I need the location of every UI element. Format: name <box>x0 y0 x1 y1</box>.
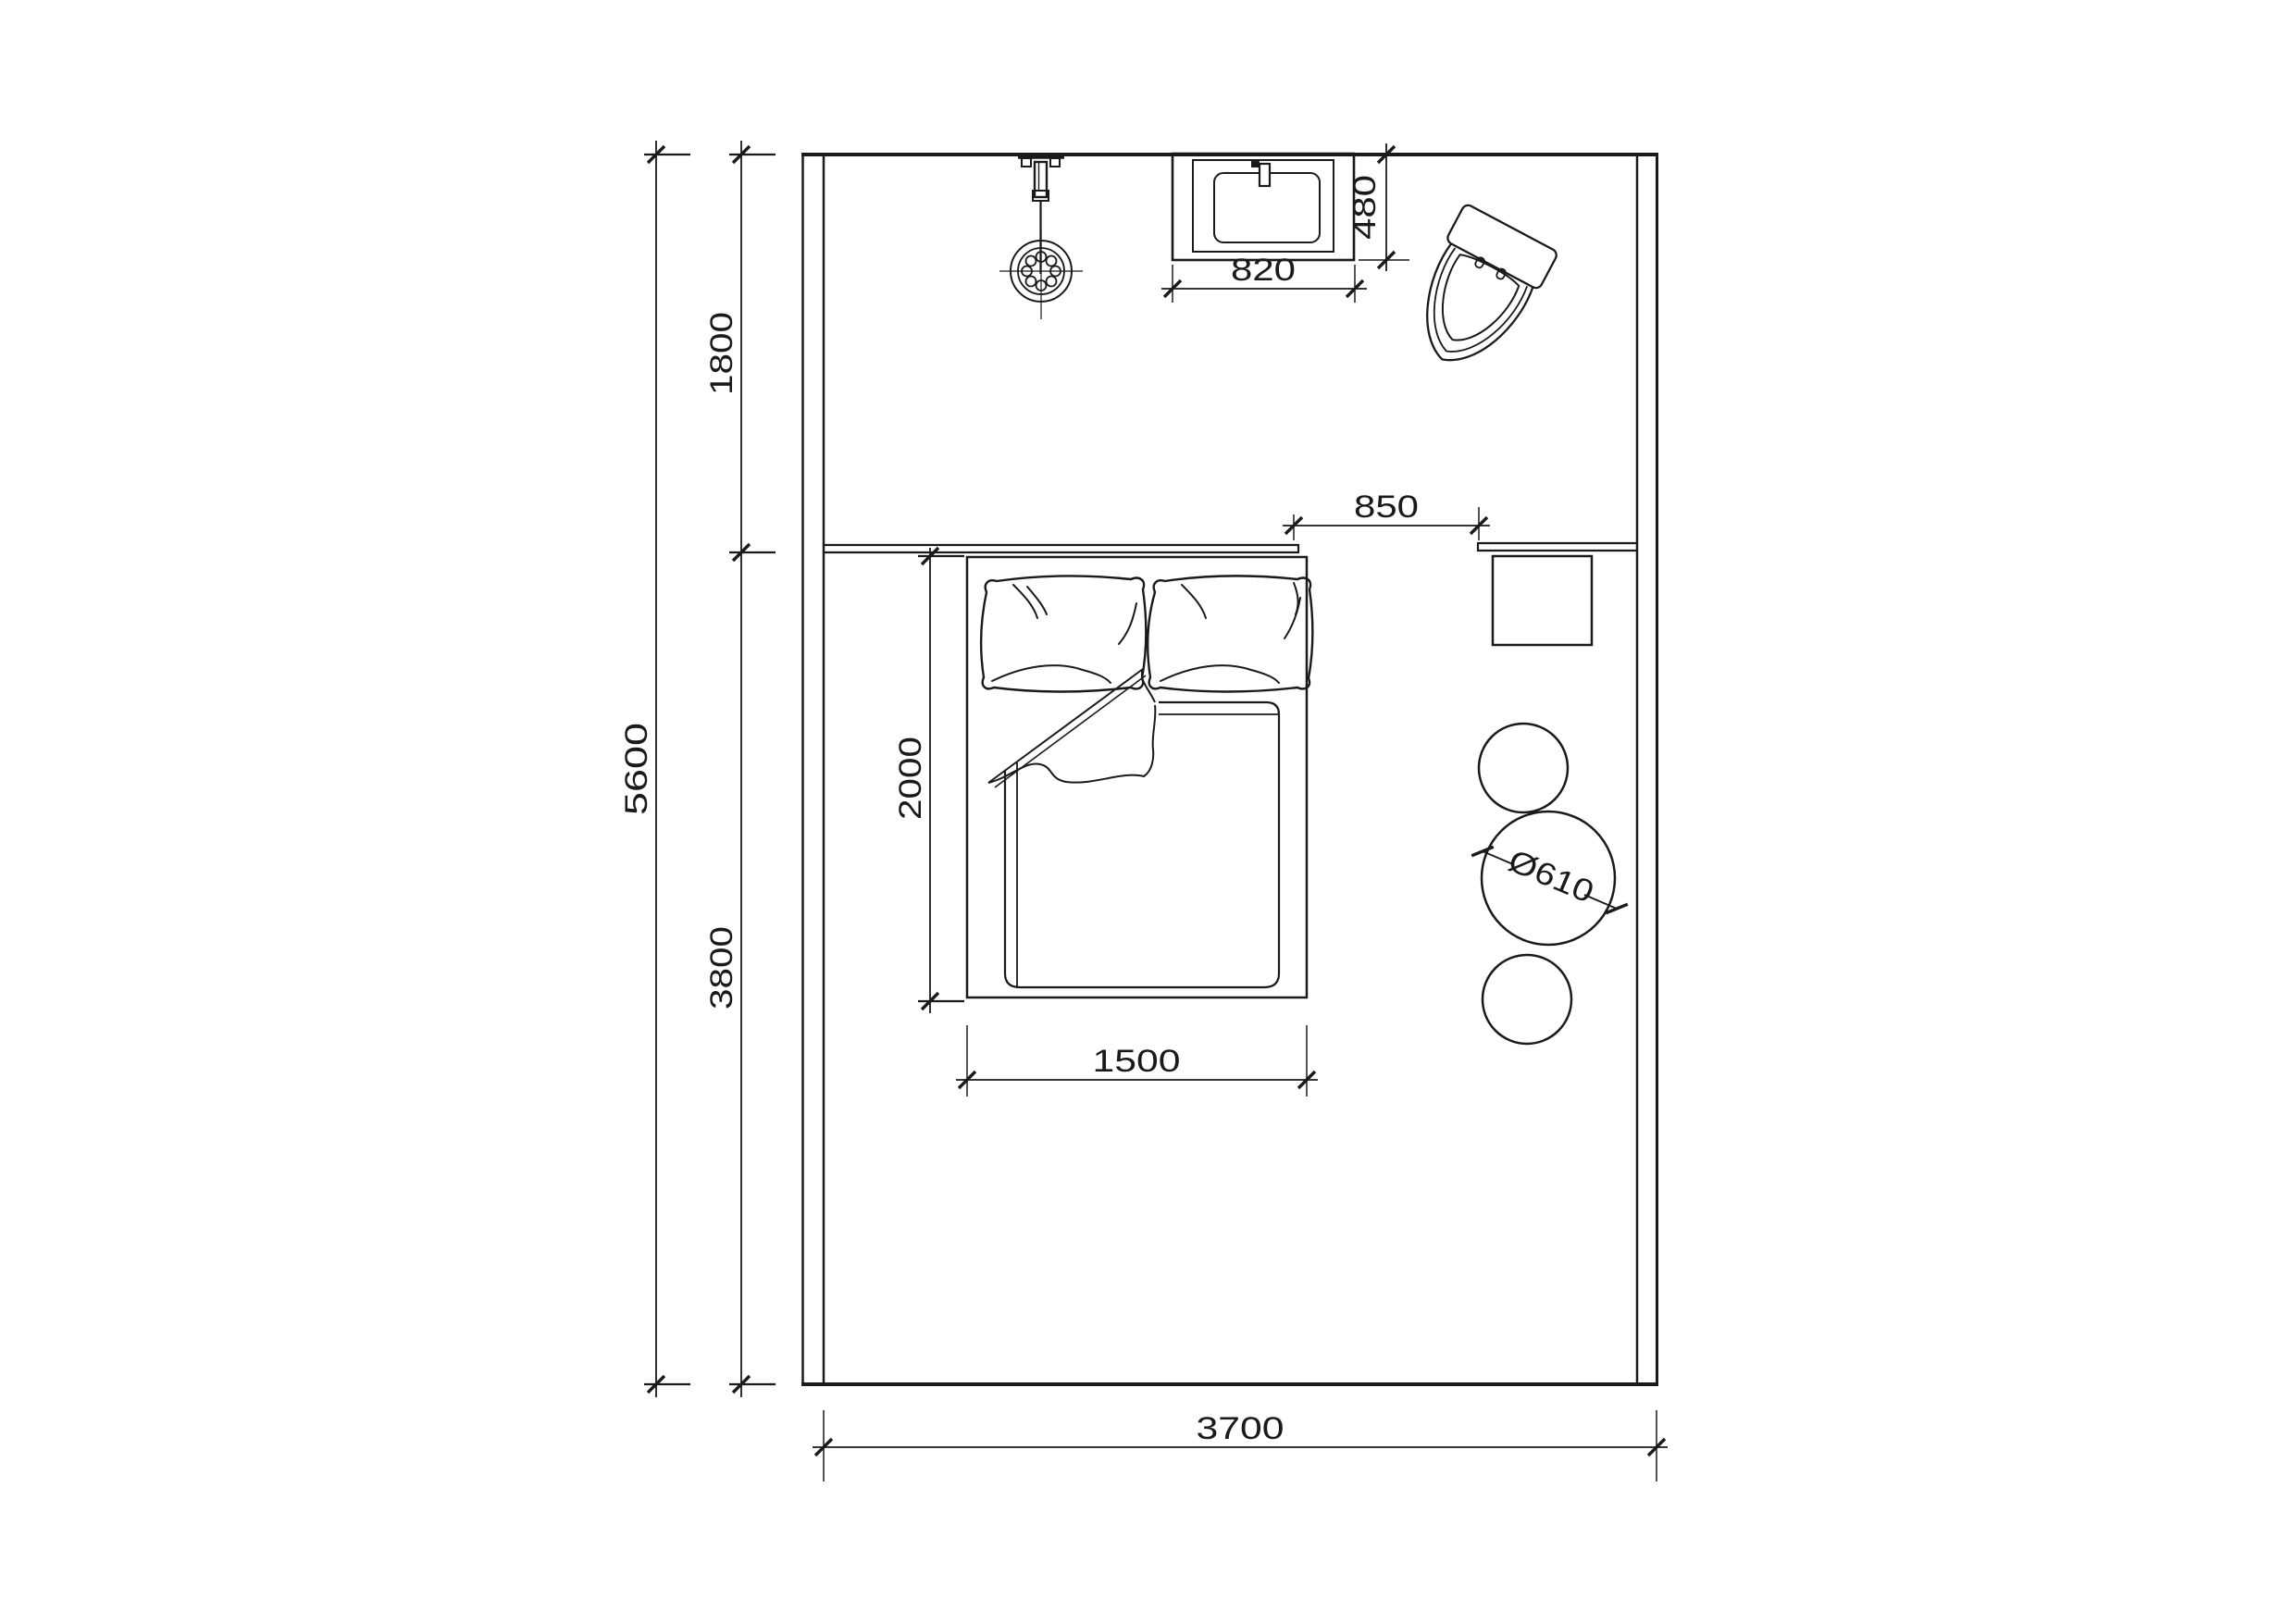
bed-frame <box>967 557 1307 997</box>
shower-fixture <box>999 157 1083 319</box>
pillow-right <box>1148 576 1312 691</box>
dim-label-3800: 3800 <box>704 926 739 1010</box>
pillow-left <box>981 576 1146 691</box>
chair-circle-bottom <box>1483 955 1571 1044</box>
dim-label-1500: 1500 <box>1093 1044 1181 1079</box>
chair-circle-top <box>1479 724 1568 812</box>
dim-label-5600: 5600 <box>619 723 654 815</box>
dim-label-2000: 2000 <box>893 737 928 820</box>
dim-label-850: 850 <box>1354 489 1419 525</box>
dim-label-3700: 3700 <box>1197 1411 1285 1446</box>
bed <box>967 557 1312 997</box>
sink <box>1173 154 1354 260</box>
desk-shelf <box>1478 543 1636 551</box>
dim-label-820: 820 <box>1231 253 1296 288</box>
floor-plan-canvas: 5600 1800 3800 2000 1500 850 820 <box>0 0 2296 1623</box>
duvet <box>988 669 1279 987</box>
stool-square <box>1493 556 1592 645</box>
sink-faucet <box>1260 164 1270 186</box>
dim-label-480: 480 <box>1347 175 1383 240</box>
headboard-ledge <box>824 545 1298 552</box>
dim-label-1800: 1800 <box>704 312 739 395</box>
dim-label-610: Ø610 <box>1503 843 1598 910</box>
toilet <box>1396 203 1558 384</box>
